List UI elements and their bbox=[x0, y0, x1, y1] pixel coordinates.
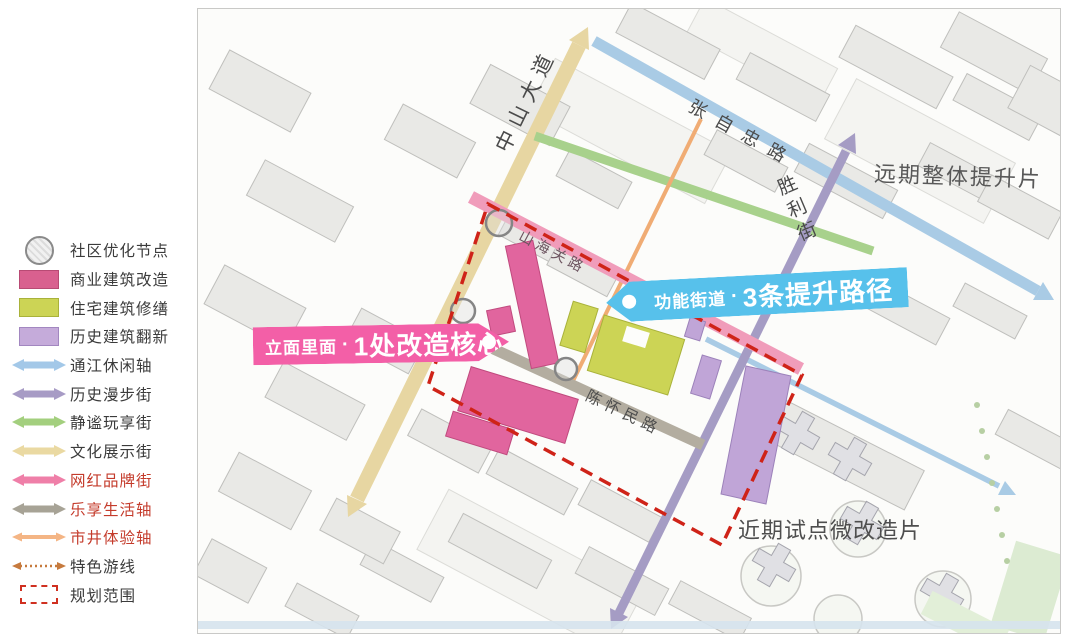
callout-facade-core[interactable]: 立面里面 · 1处改造核心 bbox=[253, 323, 510, 365]
commercial-swatch-icon bbox=[19, 270, 59, 289]
legend-item-quiet-street: 静谧玩享街 bbox=[8, 408, 194, 437]
plan-boundary-icon bbox=[20, 585, 58, 604]
legend-label: 规划范围 bbox=[70, 584, 136, 606]
map-canvas[interactable]: 中山大道 张自忠路 胜利街 山海关路 陈怀民路 远期整体提升片 近期试点微改造片… bbox=[197, 8, 1061, 634]
legend-item-node: 社区优化节点 bbox=[8, 236, 194, 265]
legend-item-market-axis: 市井体验轴 bbox=[8, 523, 194, 552]
legend-label: 网红品牌街 bbox=[70, 469, 153, 491]
legend-item-historic: 历史建筑翻新 bbox=[8, 322, 194, 351]
dotted-arrow-icon bbox=[12, 559, 66, 573]
planning-map-page: 社区优化节点 商业建筑改造 住宅建筑修缮 历史建筑翻新 通江休闲轴 历史漫步街 … bbox=[0, 0, 1080, 640]
legend-label: 文化展示街 bbox=[70, 440, 153, 462]
legend-item-plan-boundary: 规划范围 bbox=[8, 580, 194, 609]
legend-label: 商业建筑改造 bbox=[70, 268, 169, 290]
double-arrow-tan-icon bbox=[12, 444, 66, 458]
legend-item-residential: 住宅建筑修缮 bbox=[8, 293, 194, 322]
callout-separator: · bbox=[730, 285, 738, 308]
double-arrow-blue-icon bbox=[12, 358, 66, 372]
legend-label: 历史漫步街 bbox=[70, 383, 153, 405]
zone-label-far-term: 远期整体提升片 bbox=[873, 156, 1042, 194]
double-arrow-gray-icon bbox=[12, 502, 66, 516]
zone-label-near-term: 近期试点微改造片 bbox=[738, 513, 922, 545]
legend: 社区优化节点 商业建筑改造 住宅建筑修缮 历史建筑翻新 通江休闲轴 历史漫步街 … bbox=[8, 236, 194, 609]
residential-swatch-icon bbox=[19, 298, 59, 317]
legend-item-culture-street: 文化展示街 bbox=[8, 437, 194, 466]
legend-label: 历史建筑翻新 bbox=[70, 325, 169, 347]
legend-label: 住宅建筑修缮 bbox=[70, 297, 169, 319]
thin-double-arrow-orange-icon bbox=[12, 530, 66, 544]
legend-label: 社区优化节点 bbox=[70, 239, 169, 261]
node-circle-icon bbox=[25, 236, 54, 265]
callout-dot-icon bbox=[622, 294, 637, 309]
legend-item-commercial: 商业建筑改造 bbox=[8, 265, 194, 294]
legend-label: 市井体验轴 bbox=[70, 526, 153, 548]
legend-item-life-axis: 乐享生活轴 bbox=[8, 494, 194, 523]
double-arrow-pink-icon bbox=[12, 473, 66, 487]
legend-label: 乐享生活轴 bbox=[70, 498, 153, 520]
arrowhead-right-icon bbox=[998, 481, 1016, 495]
node-circle bbox=[555, 358, 577, 380]
bottom-river-strip bbox=[198, 621, 1060, 629]
legend-item-feature-route: 特色游线 bbox=[8, 552, 194, 581]
callout-separator: · bbox=[342, 333, 349, 356]
map-svg bbox=[198, 9, 1060, 633]
historic-swatch-icon bbox=[19, 327, 59, 346]
double-arrow-violet-icon bbox=[12, 387, 66, 401]
callout-prefix: 立面里面 bbox=[265, 332, 337, 358]
legend-item-history-walk: 历史漫步街 bbox=[8, 379, 194, 408]
legend-label: 静谧玩享街 bbox=[70, 411, 153, 433]
double-arrow-green-icon bbox=[12, 415, 66, 429]
legend-item-brand-street: 网红品牌街 bbox=[8, 466, 194, 495]
historic-renewal-buildings bbox=[684, 317, 791, 504]
legend-label: 特色游线 bbox=[70, 555, 136, 577]
callout-prefix: 功能街道 bbox=[653, 284, 726, 313]
callout-main-text: 3条提升路径 bbox=[742, 269, 894, 314]
legend-item-riverside-axis: 通江休闲轴 bbox=[8, 351, 194, 380]
legend-label: 通江休闲轴 bbox=[70, 354, 153, 376]
